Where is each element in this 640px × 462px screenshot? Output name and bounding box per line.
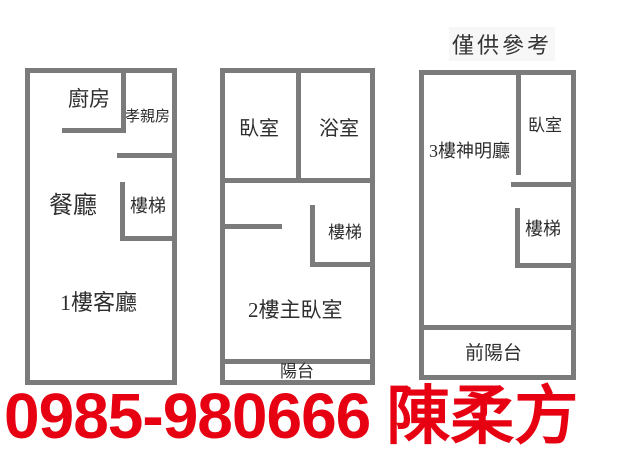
wall-segment [516,75,521,175]
room-label-bedroom: 臥室 [528,117,562,136]
wall-segment [515,208,520,267]
room-label-bedroom: 臥室 [239,118,279,140]
room-label-stairs: 樓梯 [328,224,362,243]
room-label-kitchen: 廚房 [68,88,110,111]
wall-segment [310,205,315,266]
room-label-bathroom: 浴室 [319,118,359,140]
floor-plan-2: 臥室 浴室 樓梯 2樓主臥室 陽台 [220,68,375,385]
room-label-front-balcony: 前陽台 [465,344,522,365]
room-label-balcony: 陽台 [280,363,314,382]
wall-segment [511,182,571,187]
wall-segment [424,325,571,330]
room-label-shrine-hall: 3樓神明廳 [429,142,510,162]
room-label-master-bedroom: 2樓主臥室 [248,299,343,322]
floor-plan-1: 廚房 孝親房 餐廳 樓梯 1樓客廳 [25,68,177,385]
room-label-stairs: 樓梯 [130,197,166,217]
wall-segment [225,178,370,183]
room-label-parents-room: 孝親房 [125,109,170,126]
wall-segment [296,73,301,180]
floorplan-flyer: 僅供參考 廚房 孝親房 餐廳 樓梯 1樓客廳 臥室 浴室 樓梯 2樓主臥室 陽台… [0,0,640,462]
wall-segment [120,182,125,241]
wall-segment [515,263,571,268]
room-label-stairs: 樓梯 [525,220,561,240]
agent-name: 陳柔方 [386,384,578,448]
floor-plan-3: 臥室 3樓神明廳 樓梯 前陽台 [419,70,576,380]
phone-number: 0985-980666 [4,384,370,448]
wall-segment [225,224,282,229]
wall-segment [310,262,370,267]
room-label-living-room: 1樓客廳 [60,291,137,315]
contact-line: 0985-980666 陳柔方 [4,384,638,448]
room-label-dining: 餐廳 [49,193,97,219]
wall-segment [62,128,126,133]
wall-segment [120,236,172,241]
wall-segment [117,153,172,158]
disclaimer-note: 僅供參考 [449,27,555,61]
